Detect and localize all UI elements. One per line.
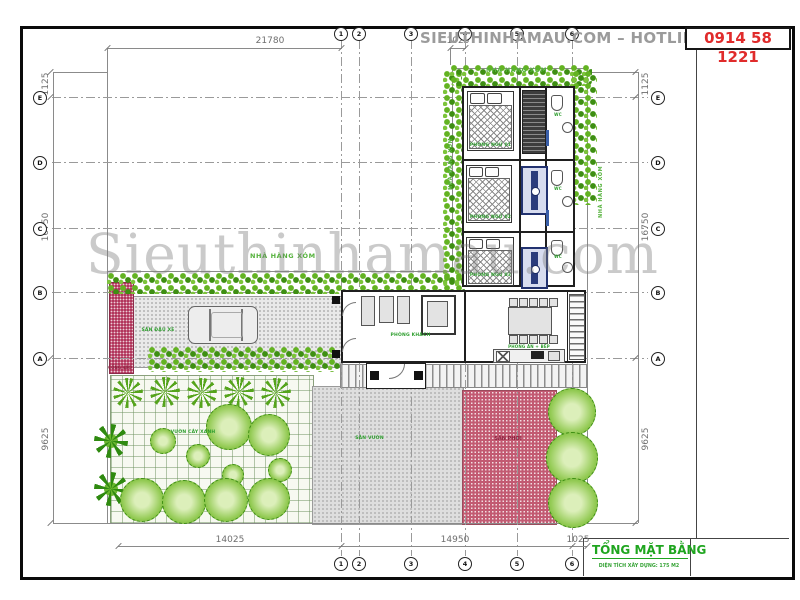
column [332, 296, 340, 304]
grid-bubble: D [33, 156, 47, 170]
entrance-gate-strip [109, 282, 134, 374]
chair [549, 335, 558, 344]
shrub [224, 377, 254, 407]
wc-door [546, 210, 549, 226]
grid-bubble: E [651, 91, 665, 105]
tree [186, 444, 210, 468]
room-label-bedroom2: PHÒNG NGỦ 02 [462, 215, 519, 221]
site-label-parking: SÂN ĐẬU XE [138, 328, 178, 334]
dim-bottom-mid: 14950 [425, 535, 485, 545]
grid-bubble: D [651, 156, 665, 170]
site-label-garden: VƯỜN CÂY XANH [164, 430, 222, 436]
room-label-dining: PHÒNG ĂN + BẾP [500, 344, 558, 349]
chair [519, 298, 528, 307]
dim-line [638, 72, 639, 523]
dim-right-mid: 16750 [641, 205, 651, 249]
dim-top-width: 21780 [240, 36, 300, 46]
grid-bubble: 1 [334, 557, 348, 571]
site-label-gate: CỔNG VÀO [103, 365, 137, 370]
grid-bubble: 6 [565, 557, 579, 571]
chair [509, 335, 518, 344]
room-label-wc: WC [548, 112, 568, 117]
sofa [397, 296, 410, 324]
column [370, 371, 379, 380]
side-steps [569, 294, 585, 360]
hedge-driveway-south [148, 346, 340, 372]
kitchen-sink [496, 351, 510, 362]
neighbor-label-top: NHÀ HÀNG XÓM [486, 67, 547, 74]
light-well [521, 166, 548, 215]
grid-bubble: C [651, 222, 665, 236]
site-label-drying: SÂN PHƠI [478, 436, 538, 442]
stove [531, 351, 544, 359]
shrub [113, 378, 143, 408]
chair [549, 298, 558, 307]
title-block-border [583, 538, 789, 539]
tree [248, 478, 290, 520]
dim-line [53, 72, 54, 523]
chair [539, 335, 548, 344]
grid-bubble: 5 [510, 557, 524, 571]
chair [509, 298, 518, 307]
tree [162, 480, 206, 524]
toilet [551, 170, 563, 186]
dim-bottom-left: 14025 [200, 535, 260, 545]
wc-door [546, 130, 549, 146]
sofa [379, 296, 394, 323]
hedge-wing-right [572, 70, 597, 205]
shrub [261, 378, 291, 408]
flower-tree [94, 424, 128, 458]
tree [120, 478, 164, 522]
grid-bubble: 3 [404, 27, 418, 41]
sofa [361, 296, 375, 326]
chair [529, 298, 538, 307]
grid-bubble: B [33, 286, 47, 300]
tree [248, 414, 290, 456]
sink [562, 196, 573, 207]
grid-bubble: 2 [352, 557, 366, 571]
drawing-subtitle: DIỆN TÍCH XÂY DỰNG: 175 M2 [584, 564, 694, 569]
sheet-margin-divider [696, 29, 697, 538]
dining-table [508, 307, 552, 335]
wardrobe [522, 90, 546, 154]
grid-bubble: C [33, 222, 47, 236]
dim-line [107, 48, 341, 49]
grid-bubble: B [651, 286, 665, 300]
neighbor-label-middle: NHÀ HÀNG XÓM [250, 252, 316, 260]
coffee-table-top [427, 301, 448, 327]
toilet [551, 95, 563, 111]
dim-right-bottom: 9625 [641, 417, 651, 461]
room-label-bedroom3: PHÒNG NGỦ 03 [462, 273, 519, 279]
car-top-view [188, 306, 258, 344]
chair [519, 335, 528, 344]
grid-bubble: A [651, 352, 665, 366]
watermark-banner-text: SIEUTHINHAMAU.COM – HOTLINE [420, 29, 682, 47]
hotline-phone: 0914 58 1221 [685, 27, 791, 50]
light-well [521, 247, 548, 289]
grid-bubble: 4 [458, 557, 472, 571]
site-label-yard: SÂN VƯỜN [342, 436, 397, 442]
room-label-wc: WC [548, 186, 568, 191]
dim-ext [450, 48, 451, 65]
dim-line [118, 546, 587, 547]
chair [539, 298, 548, 307]
sink [562, 122, 573, 133]
grid-bubble: 1 [334, 27, 348, 41]
dim-left-bottom: 9625 [41, 417, 51, 461]
tree [548, 388, 596, 436]
column [414, 371, 423, 380]
tree [204, 478, 248, 522]
neighbor-label-left: NHÀ HÀNG XÓM [448, 130, 454, 190]
grid-bubble: A [33, 352, 47, 366]
sink [562, 262, 573, 273]
drawing-title: TỔNG MẶT BẰNG [592, 543, 688, 559]
room-label-bedroom1: PHÒNG NGỦ 01 [462, 143, 519, 149]
shrub [187, 378, 217, 408]
room-label-wc: WC [548, 254, 568, 259]
column [332, 350, 340, 358]
tree [206, 404, 252, 450]
site-plan-canvas: SIEUTHINHAMAU.COM – HOTLINE 0914 58 1221… [0, 0, 800, 600]
dim-ext [107, 48, 108, 68]
neighbor-label-right: NHÀ HÀNG XÓM [598, 158, 604, 218]
chair [529, 335, 538, 344]
tree [548, 478, 598, 528]
grid-bubble: 3 [404, 557, 418, 571]
grid-bubble: 2 [352, 27, 366, 41]
tree [546, 432, 598, 484]
grid-bubble: E [33, 91, 47, 105]
shrub [150, 377, 180, 407]
kitchen-box [548, 351, 560, 361]
room-label-living: PHÒNG KHÁCH [383, 333, 438, 339]
dim-right-top: 1125 [641, 62, 651, 106]
